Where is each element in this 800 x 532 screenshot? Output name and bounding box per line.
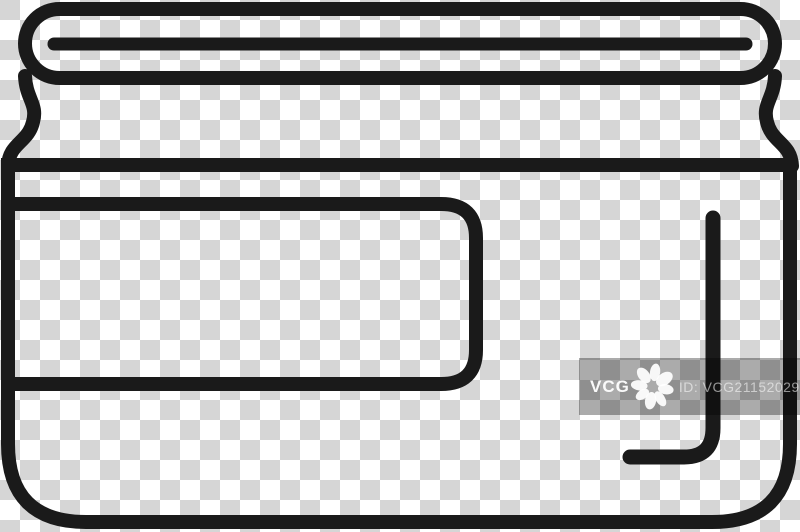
watermark-id-text: ID: VCG211520293455 — [679, 379, 800, 395]
watermark: VCG ID: VCG211520293455 — [579, 358, 800, 415]
jar-label-band — [1, 204, 476, 384]
jar-icon — [0, 0, 800, 532]
jar-body — [8, 165, 790, 522]
jar-shoulder-left — [8, 76, 34, 166]
vcg-flower-icon — [628, 360, 678, 414]
watermark-brand-text: VCG — [590, 377, 630, 397]
jar-shoulder-right — [766, 76, 792, 166]
jar-highlight-reflection — [630, 218, 713, 457]
